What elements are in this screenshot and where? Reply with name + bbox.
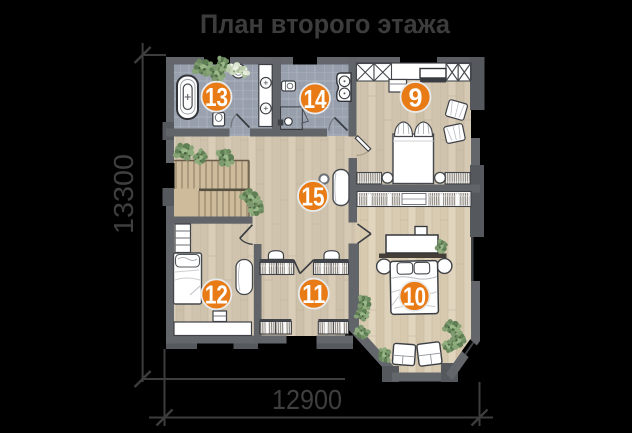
svg-text:15: 15 [302, 181, 325, 211]
svg-text:14: 14 [304, 84, 327, 114]
svg-text:9: 9 [409, 82, 423, 112]
svg-text:10: 10 [403, 281, 426, 311]
svg-text:12900: 12900 [272, 384, 342, 415]
svg-text:11: 11 [302, 279, 325, 309]
svg-text:13: 13 [205, 82, 228, 112]
svg-text:План второго этажа: План второго этажа [200, 9, 451, 39]
svg-text:12: 12 [205, 280, 228, 310]
svg-text:13300: 13300 [108, 154, 139, 234]
